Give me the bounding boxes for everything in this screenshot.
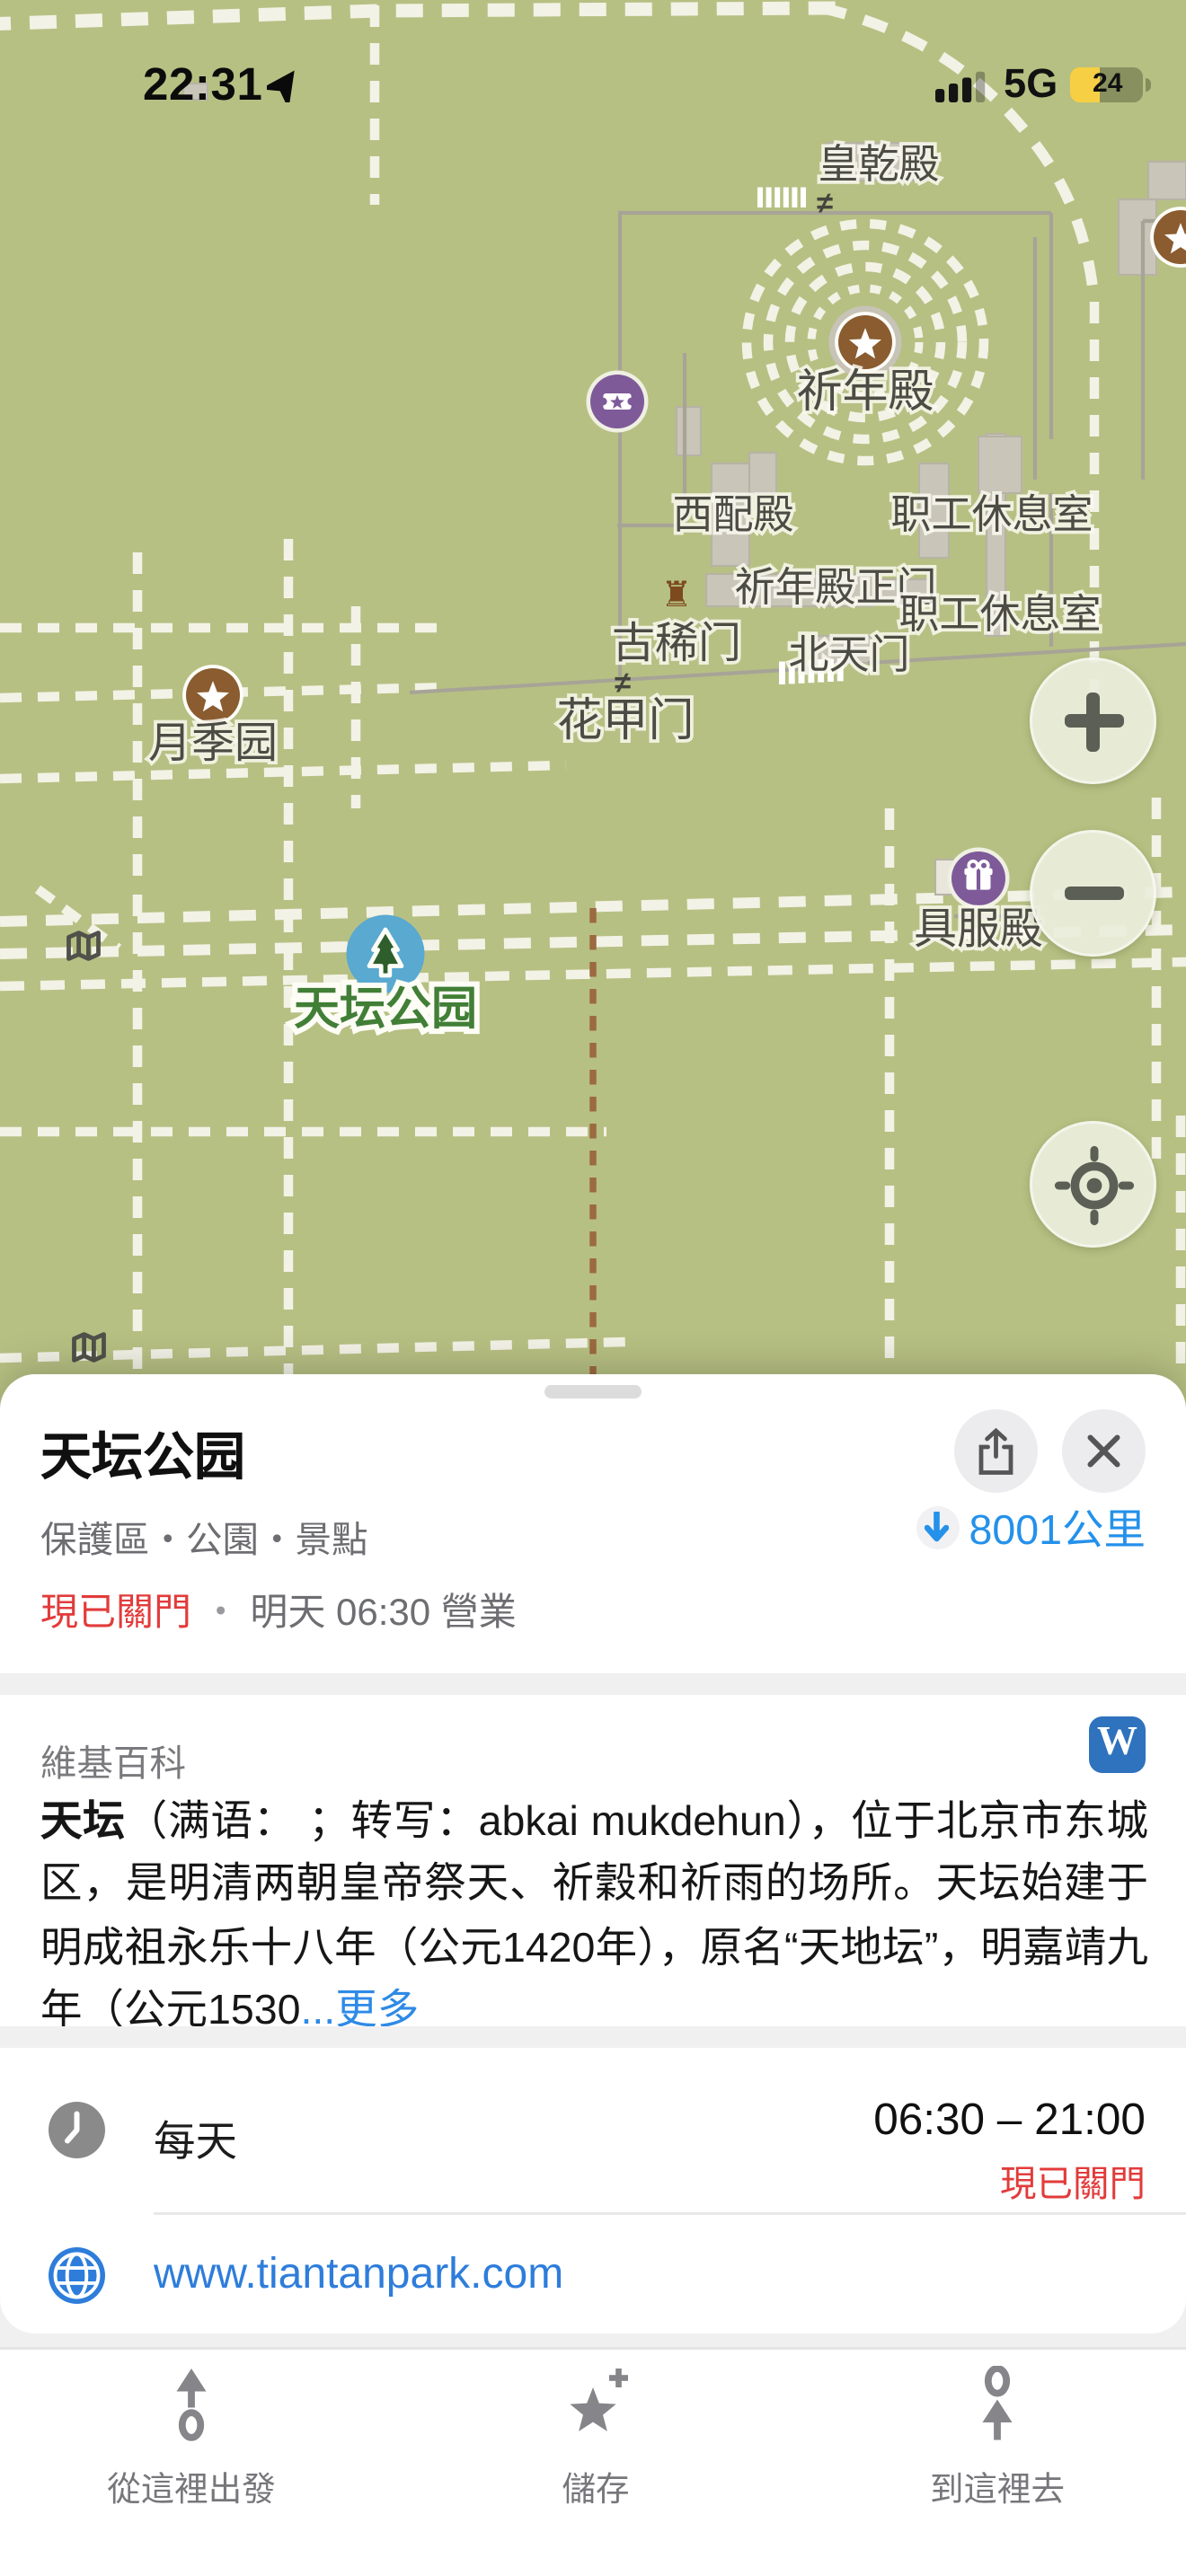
directions-to-here-button[interactable]: 到這裡去 [836, 2366, 1159, 2511]
save-button[interactable]: 儲存 [434, 2366, 757, 2511]
route-from-icon [156, 2366, 226, 2441]
opens-tomorrow-label: 明天 06:30 營業 [250, 1590, 516, 1633]
distance-value: 8001公里 [969, 1498, 1146, 1557]
wikipedia-card: 維基百科 W 天坛（满语： ；转写：abkai mukdehun），位于北京市东… [0, 1695, 1186, 2026]
svg-text:具服殿: 具服殿 [914, 905, 1043, 953]
svg-text:北天门: 北天门 [788, 631, 909, 677]
battery-percent: 24 [1071, 67, 1144, 102]
battery-icon: 24 [1071, 67, 1151, 102]
bottom-toolbar: 從這裡出發 儲存 到這裡去 [0, 2347, 1186, 2576]
park-marker-tree-icon[interactable] [347, 915, 425, 993]
place-card-header: 天坛公园 保護區・公園・景點 [0, 1374, 1186, 1673]
row-divider [154, 2212, 1186, 2215]
toolbar-label: 儲存 [434, 2460, 757, 2511]
zoom-out-button[interactable] [1030, 830, 1156, 957]
place-title: 天坛公园 [40, 1417, 245, 1490]
wiki-body-text: （满语： ；转写：abkai mukdehun），位于北京市东城区，是明清两朝皇… [40, 1800, 1148, 2035]
share-icon [976, 1427, 1016, 1476]
clock-time: 22:31 [143, 59, 262, 113]
hours-closed-label: 現已關門 [1000, 2153, 1146, 2207]
status-bar: 22:31 5G 24 [0, 0, 1186, 119]
close-icon [1086, 1434, 1121, 1469]
toolbar-label: 從這裡出發 [30, 2460, 353, 2511]
svg-text:花甲门: 花甲门 [556, 694, 694, 745]
locate-target-icon [1053, 1144, 1134, 1225]
section-divider [0, 2026, 1186, 2048]
info-card: 每天 06:30 – 21:00 現已關門 www.tiantanpark.co… [0, 2048, 1186, 2333]
poi-yuejiyuan-star-icon[interactable] [182, 665, 243, 726]
place-card-sheet: 天坛公园 保護區・公園・景點 [0, 1374, 1186, 2576]
gift-shop-icon[interactable] [948, 848, 1010, 910]
website-link[interactable]: www.tiantanpark.com [154, 2253, 563, 2301]
svg-text:祈年殿: 祈年殿 [796, 366, 934, 417]
distance-indicator: 8001公里 [916, 1498, 1146, 1557]
wikipedia-w-glyph: W [1097, 1722, 1137, 1768]
locate-me-button[interactable] [1030, 1121, 1156, 1248]
watchtower-icon: ♜ [661, 576, 693, 614]
hours-time-range: 06:30 – 21:00 [873, 2096, 1146, 2148]
ticket-office-icon[interactable] [587, 371, 649, 433]
clock-icon [49, 2102, 105, 2158]
svg-text:月季园: 月季园 [148, 719, 278, 767]
section-divider [0, 1673, 1186, 1695]
share-button[interactable] [954, 1409, 1038, 1493]
hours-day-label: 每天 [154, 2110, 237, 2169]
maps-app: ♜ ≠ ≠ 皇乾殿 祈年殿 西配殿 职工休息室 祈年殿正门 职工休息室 古稀门 … [0, 0, 1186, 2576]
zoom-in-button[interactable] [1030, 657, 1156, 784]
dot-separator: ・ [202, 1590, 240, 1633]
directions-from-here-button[interactable]: 從這裡出發 [30, 2366, 353, 2511]
location-arrow-icon [267, 67, 302, 102]
close-button[interactable] [1062, 1409, 1146, 1493]
network-type: 5G [1004, 62, 1058, 108]
place-categories: 保護區・公園・景點 [40, 1509, 368, 1563]
map-canvas[interactable]: ♜ ≠ ≠ 皇乾殿 祈年殿 西配殿 职工休息室 祈年殿正门 职工休息室 古稀门 … [0, 0, 1186, 1393]
closed-now-label: 現已關門 [40, 1590, 191, 1633]
globe-icon [49, 2247, 105, 2304]
open-status-line: 現已關門 ・ 明天 06:30 營業 [40, 1584, 517, 1638]
svg-text:古稀门: 古稀门 [612, 620, 741, 667]
shrine-icon: ≠ [817, 186, 833, 219]
toolbar-label: 到這裡去 [836, 2460, 1159, 2511]
wikipedia-icon: W [1089, 1716, 1146, 1773]
svg-text:皇乾殿: 皇乾殿 [818, 141, 939, 187]
svg-text:职工休息室: 职工休息室 [890, 491, 1093, 537]
svg-text:西配殿: 西配殿 [672, 491, 793, 537]
sheet-drag-handle[interactable] [544, 1385, 642, 1398]
save-star-icon [558, 2366, 633, 2441]
svg-text:职工休息室: 职工休息室 [898, 591, 1101, 637]
wiki-lead-word: 天坛 [40, 1800, 126, 1846]
park-name-label: 天坛公园 [294, 983, 477, 1034]
route-to-icon [962, 2366, 1032, 2441]
direction-down-arrow-icon [916, 1506, 959, 1549]
wikipedia-summary: 天坛（满语： ；转写：abkai mukdehun），位于北京市东城区，是明清两… [40, 1792, 1148, 2044]
signal-bars-icon [936, 69, 990, 101]
wikipedia-section-label: 維基百科 [40, 1733, 186, 1786]
